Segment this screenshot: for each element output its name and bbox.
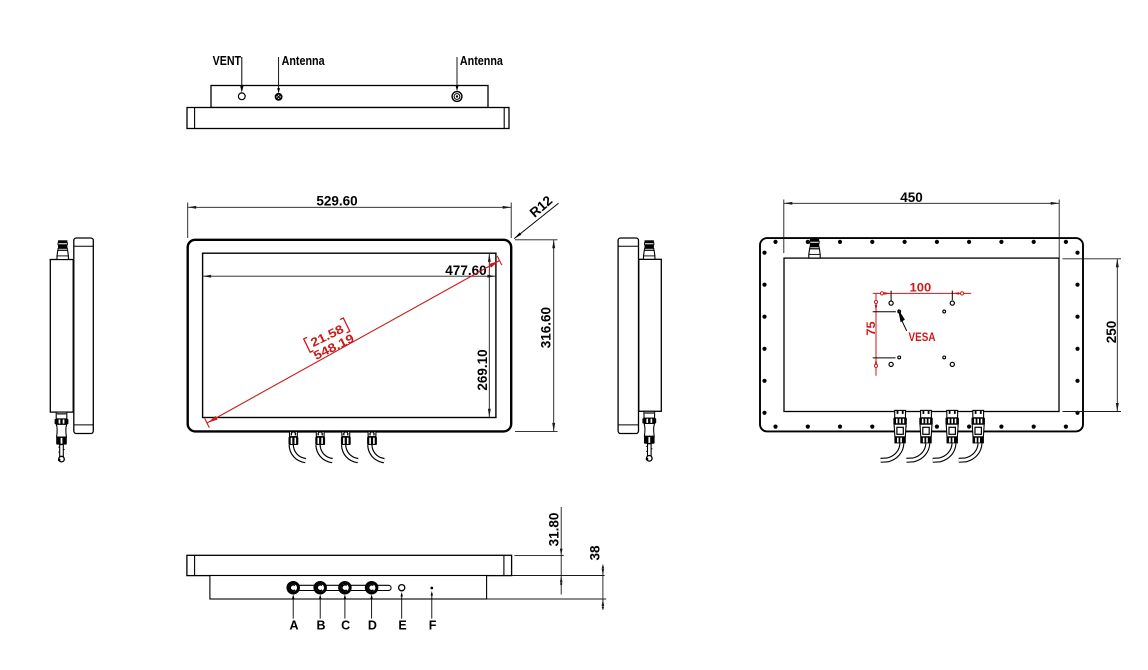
svg-text:31.80: 31.80 [547, 513, 562, 547]
svg-text:529.60: 529.60 [316, 194, 357, 209]
svg-text:F: F [429, 619, 437, 633]
svg-text:450: 450 [900, 190, 923, 205]
svg-text:Antenna: Antenna [460, 53, 504, 68]
svg-text:75: 75 [864, 321, 878, 335]
svg-text:316.60: 316.60 [538, 307, 553, 348]
svg-text:VENT: VENT [213, 53, 242, 68]
svg-text:A: A [289, 619, 298, 633]
svg-text:100: 100 [910, 280, 932, 294]
svg-text:38: 38 [587, 545, 602, 561]
svg-text:269.10: 269.10 [475, 349, 490, 390]
svg-text:Antenna: Antenna [282, 53, 326, 68]
svg-text:250: 250 [1104, 321, 1119, 344]
svg-text:477.60: 477.60 [445, 263, 486, 278]
svg-text:C: C [341, 619, 350, 633]
svg-text:B: B [316, 619, 325, 633]
svg-text:E: E [398, 619, 406, 633]
svg-text:VESA: VESA [909, 330, 936, 344]
svg-text:D: D [368, 619, 377, 633]
